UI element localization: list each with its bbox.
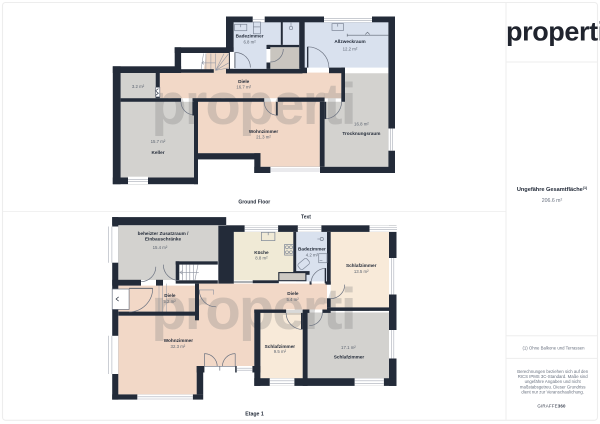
svg-text:Küche: Küche [254, 250, 269, 255]
svg-text:13.5 m²: 13.5 m² [354, 269, 369, 274]
svg-text:9.5 m²: 9.5 m² [274, 349, 287, 354]
svg-text:Ungefähre Gesamtfläche(1): Ungefähre Gesamtfläche(1) [517, 187, 588, 194]
svg-text:Diele: Diele [238, 79, 250, 84]
svg-text:16.7 m²: 16.7 m² [236, 84, 251, 89]
svg-text:Einbauschränke: Einbauschränke [145, 237, 182, 242]
svg-text:17.1 m²: 17.1 m² [341, 345, 356, 350]
svg-text:Wohnzimmer: Wohnzimmer [164, 338, 194, 343]
svg-text:16.8 m²: 16.8 m² [354, 121, 369, 126]
svg-text:Allzweckraum: Allzweckraum [334, 39, 365, 44]
svg-text:Keller: Keller [151, 150, 164, 155]
svg-text:Trocknungsraum: Trocknungsraum [342, 131, 380, 136]
svg-text:(1) Ohne Balkone und Terrassen: (1) Ohne Balkone und Terrassen [522, 346, 585, 351]
svg-text:Schlafzimmer: Schlafzimmer [334, 355, 365, 360]
svg-text:Badezimmer: Badezimmer [236, 34, 264, 39]
svg-text:beheizter Zusatzraum /: beheizter Zusatzraum / [138, 231, 189, 236]
svg-text:properti: properti [506, 16, 600, 46]
svg-text:8.8 m²: 8.8 m² [255, 256, 268, 261]
svg-text:6.8 m²: 6.8 m² [243, 40, 256, 45]
svg-text:32.3 m²: 32.3 m² [171, 344, 186, 349]
svg-text:Badezimmer: Badezimmer [298, 246, 326, 251]
svg-text:Diele: Diele [287, 291, 299, 296]
svg-text:5.2 m²: 5.2 m² [163, 299, 176, 304]
svg-text:Diele: Diele [164, 293, 176, 298]
svg-text:15.4 m²: 15.4 m² [153, 245, 168, 250]
svg-text:15.7 m²: 15.7 m² [151, 139, 166, 144]
svg-text:Etage 1: Etage 1 [245, 412, 264, 418]
svg-text:21.3 m²: 21.3 m² [256, 135, 271, 140]
svg-text:Schlafzimmer: Schlafzimmer [265, 344, 296, 349]
svg-text:206.6 m²: 206.6 m² [542, 198, 563, 204]
svg-text:Ground Floor: Ground Floor [238, 200, 270, 206]
svg-text:GIRAFFE360: GIRAFFE360 [537, 404, 566, 409]
svg-text:12.2 m²: 12.2 m² [343, 46, 358, 51]
svg-text:3.2 m²: 3.2 m² [132, 84, 145, 89]
svg-text:Wohnzimmer: Wohnzimmer [249, 129, 279, 134]
svg-text:Text: Text [301, 214, 311, 220]
svg-text:4.2 m²: 4.2 m² [306, 252, 319, 257]
svg-text:dient nur zur Veranschaulichun: dient nur zur Veranschaulichung. [521, 389, 584, 394]
svg-text:Schlafzimmer: Schlafzimmer [346, 263, 377, 268]
svg-text:5.4 m²: 5.4 m² [286, 297, 299, 302]
